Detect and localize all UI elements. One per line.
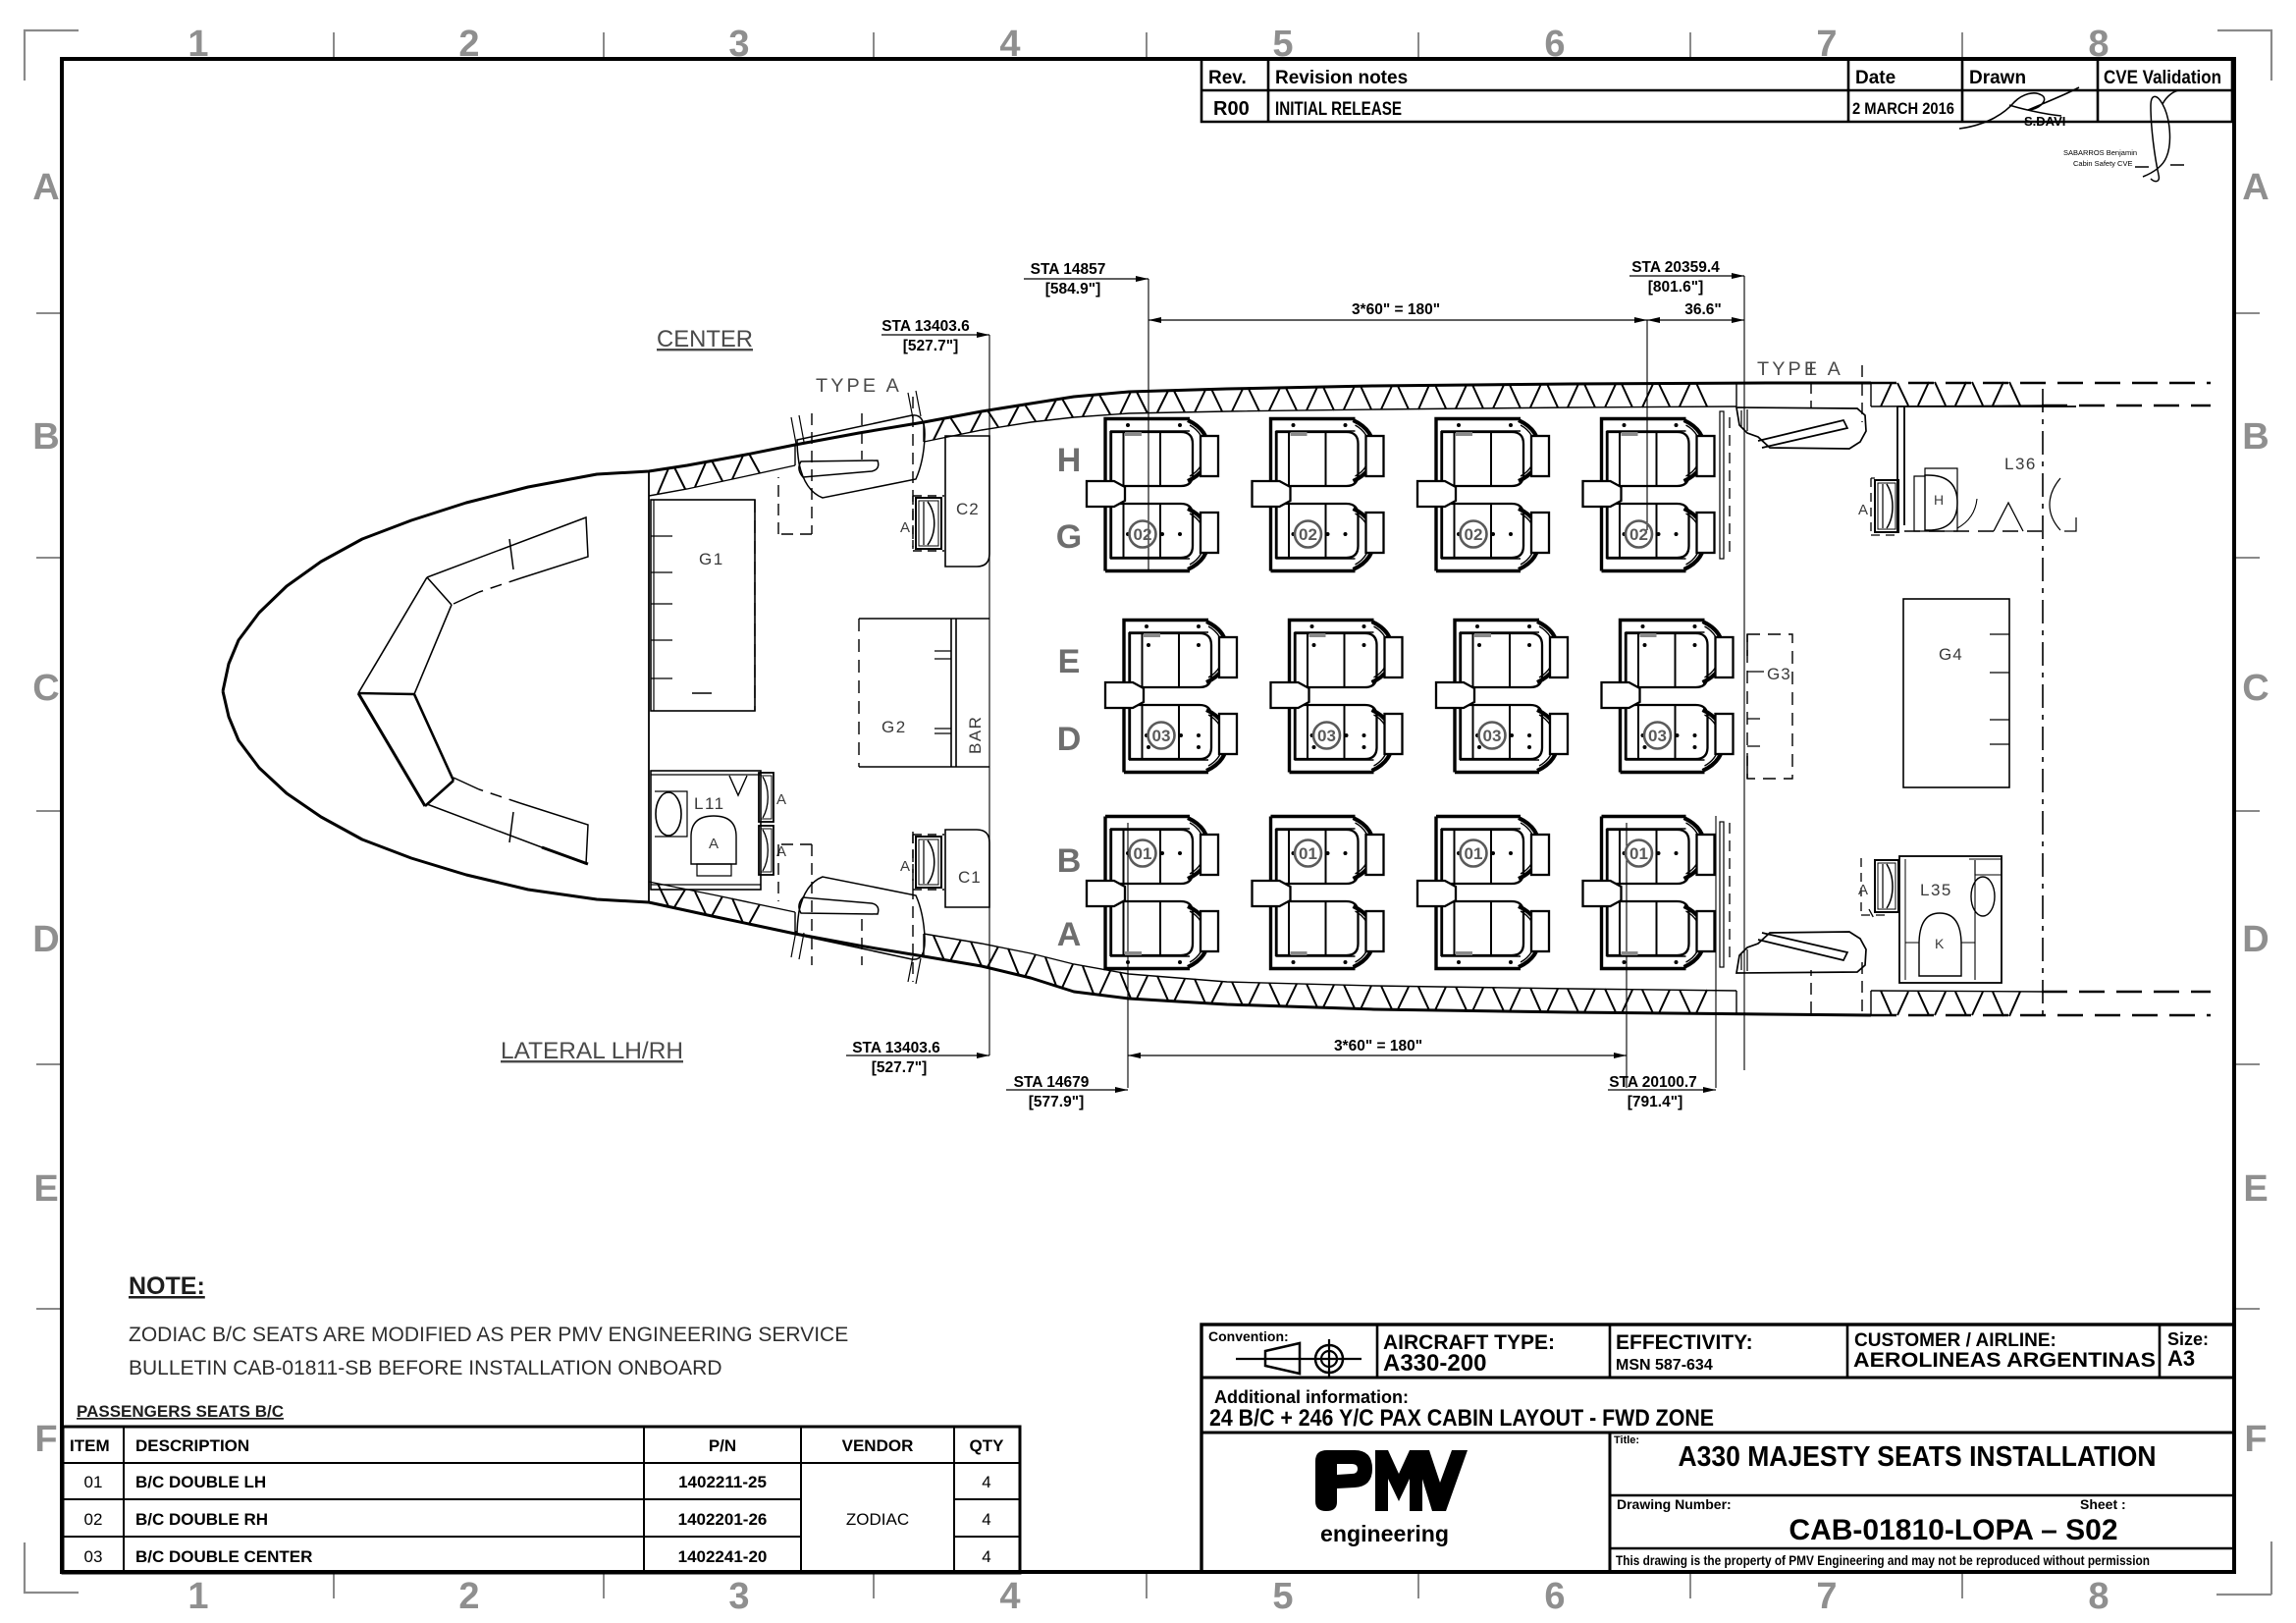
svg-text:C: C: [2242, 668, 2269, 709]
svg-text:CAB-01810-LOPA – S02: CAB-01810-LOPA – S02: [1789, 1514, 2117, 1546]
svg-text:A: A: [709, 836, 719, 852]
svg-text:Convention:: Convention:: [1208, 1328, 1289, 1344]
svg-text:1402201-26: 1402201-26: [678, 1510, 768, 1529]
svg-text:Date: Date: [1855, 68, 1896, 88]
svg-text:A: A: [1858, 502, 1868, 518]
svg-text:Title:: Title:: [1614, 1434, 1639, 1446]
svg-text:G3: G3: [1767, 665, 1791, 683]
svg-text:BULLETIN CAB-01811-SB BEFORE I: BULLETIN CAB-01811-SB BEFORE INSTALLATIO…: [129, 1357, 722, 1380]
svg-text:02: 02: [1299, 525, 1317, 544]
svg-text:CVE Validation: CVE Validation: [2104, 68, 2221, 88]
svg-text:24 B/C + 246 Y/C PAX CABIN LAY: 24 B/C + 246 Y/C PAX CABIN LAYOUT - FWD …: [1209, 1405, 1714, 1432]
svg-text:STA 14679: STA 14679: [1014, 1074, 1090, 1091]
svg-text:G1: G1: [699, 550, 724, 568]
svg-text:AEROLINEAS ARGENTINAS: AEROLINEAS ARGENTINAS: [1853, 1349, 2156, 1372]
svg-text:STA 13403.6: STA 13403.6: [881, 318, 970, 335]
svg-text:[527.7"]: [527.7"]: [903, 338, 958, 354]
svg-text:A: A: [2242, 167, 2269, 208]
svg-text:Drawn: Drawn: [1969, 68, 2026, 88]
svg-text:PASSENGERS SEATS B/C: PASSENGERS SEATS B/C: [77, 1402, 284, 1421]
svg-text:B: B: [32, 416, 59, 458]
svg-text:01: 01: [1134, 844, 1152, 863]
svg-text:MSN 587-634: MSN 587-634: [1616, 1357, 1713, 1374]
svg-text:D: D: [32, 919, 59, 960]
svg-text:[527.7"]: [527.7"]: [872, 1059, 927, 1076]
svg-text:B: B: [1057, 842, 1082, 880]
svg-text:EFFECTIVITY:: EFFECTIVITY:: [1616, 1331, 1753, 1354]
svg-text:BAR: BAR: [966, 716, 985, 754]
svg-text:B/C DOUBLE RH: B/C DOUBLE RH: [135, 1510, 268, 1529]
svg-text:H: H: [1057, 442, 1082, 479]
svg-text:[584.9"]: [584.9"]: [1045, 281, 1100, 298]
svg-text:03: 03: [1648, 727, 1667, 745]
svg-text:STA 20359.4: STA 20359.4: [1631, 259, 1720, 276]
svg-text:A: A: [1057, 916, 1082, 953]
svg-text:02: 02: [1629, 525, 1648, 544]
svg-text:[791.4"]: [791.4"]: [1628, 1094, 1682, 1110]
svg-text:A: A: [776, 791, 786, 808]
svg-text:[801.6"]: [801.6"]: [1648, 279, 1703, 296]
svg-text:F: F: [2244, 1419, 2267, 1460]
svg-text:4: 4: [982, 1473, 990, 1491]
svg-text:01: 01: [1299, 844, 1317, 863]
svg-text:A: A: [1858, 882, 1868, 898]
svg-text:A330-200: A330-200: [1383, 1350, 1486, 1377]
svg-text:LATERAL LH/RH: LATERAL LH/RH: [501, 1038, 683, 1064]
svg-text:01: 01: [1629, 844, 1648, 863]
svg-text:G2: G2: [881, 718, 907, 736]
svg-text:C1: C1: [958, 868, 982, 887]
svg-text:F: F: [34, 1419, 57, 1460]
svg-text:Rev.: Rev.: [1208, 68, 1247, 88]
svg-text:This drawing is the property o: This drawing is the property of PMV Engi…: [1616, 1553, 2150, 1568]
svg-text:E: E: [2243, 1168, 2268, 1210]
svg-text:B: B: [2242, 416, 2269, 458]
svg-text:A: A: [32, 167, 59, 208]
svg-text:C2: C2: [956, 500, 980, 518]
svg-text:CUSTOMER / AIRLINE:: CUSTOMER / AIRLINE:: [1854, 1330, 2056, 1351]
svg-text:R00: R00: [1213, 98, 1250, 120]
svg-text:A: A: [900, 519, 910, 536]
svg-text:3*60" = 180": 3*60" = 180": [1352, 301, 1440, 318]
svg-text:2: 2: [458, 1576, 479, 1617]
svg-text:4: 4: [982, 1547, 990, 1566]
svg-text:03: 03: [84, 1547, 103, 1566]
svg-text:E: E: [33, 1168, 58, 1210]
svg-text:SABARROS Benjamin: SABARROS Benjamin: [2063, 148, 2137, 157]
svg-text:H: H: [1934, 492, 1944, 508]
svg-text:K: K: [1935, 936, 1945, 951]
svg-text:1: 1: [187, 1576, 208, 1617]
svg-text:6: 6: [1544, 1576, 1565, 1617]
svg-text:INITIAL RELEASE: INITIAL RELEASE: [1275, 99, 1402, 120]
svg-text:B/C DOUBLE LH: B/C DOUBLE LH: [135, 1473, 266, 1491]
svg-text:B/C DOUBLE CENTER: B/C DOUBLE CENTER: [135, 1547, 312, 1566]
svg-text:[577.9"]: [577.9"]: [1029, 1094, 1084, 1110]
svg-text:G: G: [1056, 518, 1082, 556]
svg-text:03: 03: [1152, 727, 1171, 745]
svg-text:Additional information:: Additional information:: [1214, 1387, 1409, 1407]
svg-text:engineering: engineering: [1320, 1521, 1449, 1546]
svg-text:A330 MAJESTY SEATS INSTALLATIO: A330 MAJESTY SEATS INSTALLATION: [1679, 1441, 2157, 1473]
svg-text:02: 02: [1134, 525, 1152, 544]
svg-text:4: 4: [999, 1576, 1020, 1617]
svg-text:QTY: QTY: [970, 1436, 1005, 1455]
svg-text:S.DAVI: S.DAVI: [2024, 114, 2065, 129]
svg-text:3*60" = 180": 3*60" = 180": [1334, 1038, 1422, 1055]
svg-text:D: D: [1057, 721, 1082, 758]
svg-text:TYPE A: TYPE A: [816, 376, 902, 397]
svg-text:3: 3: [728, 1576, 749, 1617]
svg-text:4: 4: [982, 1510, 990, 1529]
svg-text:ZODIAC B/C SEATS ARE MODIFIED: ZODIAC B/C SEATS ARE MODIFIED AS PER PMV…: [129, 1324, 848, 1346]
svg-text:02: 02: [1465, 525, 1483, 544]
svg-text:01: 01: [1465, 844, 1483, 863]
svg-text:03: 03: [1317, 727, 1336, 745]
svg-text:1402211-25: 1402211-25: [678, 1473, 767, 1491]
svg-text:L36: L36: [2004, 455, 2037, 473]
svg-text:VENDOR: VENDOR: [842, 1436, 914, 1455]
svg-text:2 MARCH 2016: 2 MARCH 2016: [1852, 99, 1954, 118]
svg-text:Cabin Safety CVE: Cabin Safety CVE: [2073, 159, 2132, 168]
svg-text:STA 14857: STA 14857: [1031, 261, 1106, 278]
svg-text:L11: L11: [694, 794, 725, 813]
svg-text:02: 02: [84, 1510, 103, 1529]
svg-text:STA 13403.6: STA 13403.6: [852, 1040, 940, 1056]
svg-text:01: 01: [84, 1473, 103, 1491]
svg-text:C: C: [32, 668, 59, 709]
svg-text:DESCRIPTION: DESCRIPTION: [135, 1436, 249, 1455]
svg-text:Sheet :: Sheet :: [2080, 1496, 2126, 1512]
svg-text:Drawing Number:: Drawing Number:: [1617, 1496, 1732, 1512]
svg-text:D: D: [2242, 919, 2269, 960]
svg-text:P/N: P/N: [709, 1436, 736, 1455]
svg-text:1402241-20: 1402241-20: [678, 1547, 768, 1566]
svg-text:ZODIAC: ZODIAC: [846, 1510, 909, 1529]
svg-text:36.6": 36.6": [1684, 301, 1722, 318]
svg-text:A3: A3: [2167, 1346, 2195, 1371]
svg-text:STA 20100.7: STA 20100.7: [1609, 1074, 1697, 1091]
svg-text:E: E: [1058, 643, 1081, 680]
svg-text:G4: G4: [1939, 645, 1963, 664]
svg-text:TYPE A: TYPE A: [1757, 359, 1843, 380]
svg-text:ITEM: ITEM: [70, 1436, 110, 1455]
svg-text:NOTE:: NOTE:: [129, 1272, 205, 1300]
svg-text:7: 7: [1816, 1576, 1837, 1617]
svg-text:Revision notes: Revision notes: [1275, 68, 1408, 88]
svg-text:A: A: [900, 858, 910, 875]
svg-text:8: 8: [2088, 1576, 2109, 1617]
svg-text:5: 5: [1272, 1576, 1293, 1617]
svg-text:CENTER: CENTER: [657, 326, 753, 352]
svg-text:03: 03: [1483, 727, 1502, 745]
svg-text:L35: L35: [1920, 881, 1952, 899]
